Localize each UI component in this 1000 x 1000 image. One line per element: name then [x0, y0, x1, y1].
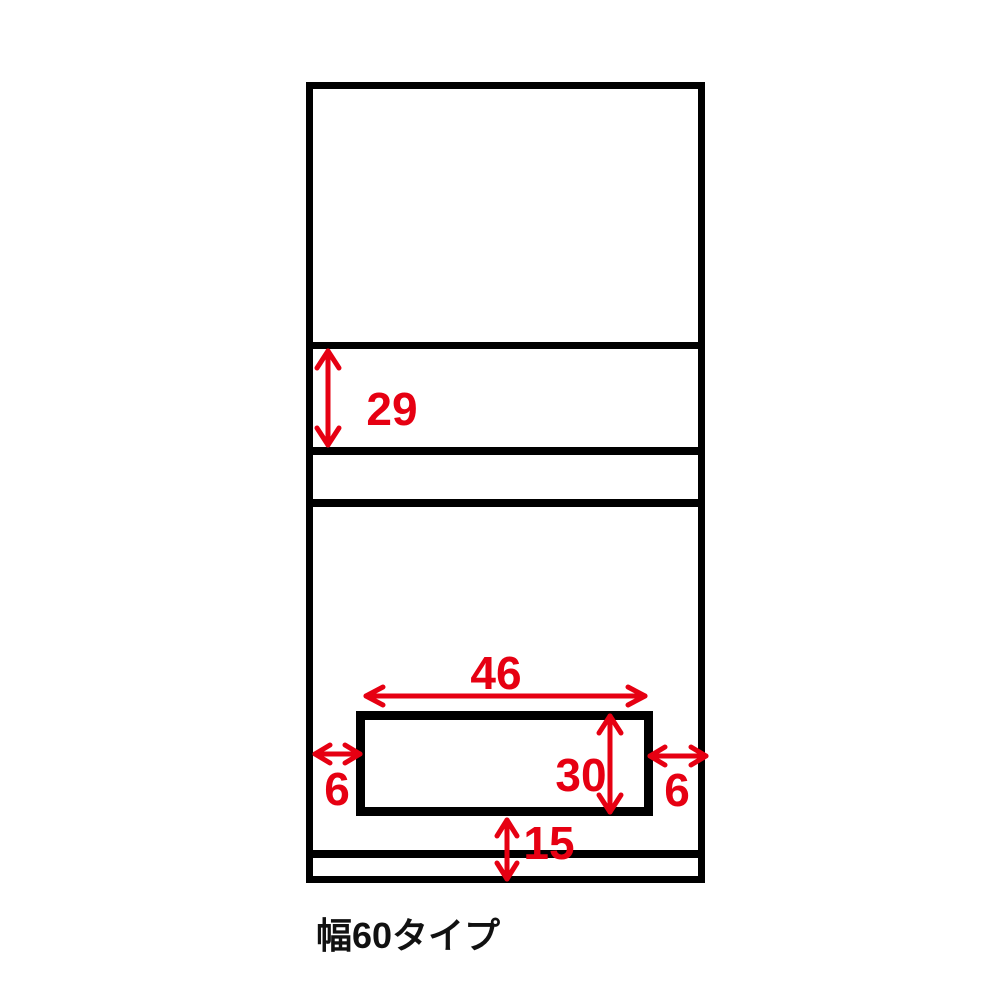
caption-width-type: 幅60タイプ	[316, 914, 500, 957]
shelf-divider-middle	[306, 499, 705, 507]
shelf-divider-base	[306, 850, 705, 858]
dim-label-30: 30	[555, 752, 606, 798]
opening-outline	[356, 711, 653, 816]
dim-label-6-right: 6	[664, 767, 690, 813]
dim-label-46: 46	[470, 650, 521, 696]
shelf-divider-flap-bottom	[306, 447, 705, 455]
shelf-divider-top	[306, 342, 705, 349]
dim-label-29: 29	[366, 386, 417, 432]
dim-label-6-left: 6	[324, 766, 350, 812]
dim-label-15: 15	[523, 820, 574, 866]
diagram-canvas: 29 46 30 6 6 15 幅60タイプ	[0, 0, 1000, 1000]
